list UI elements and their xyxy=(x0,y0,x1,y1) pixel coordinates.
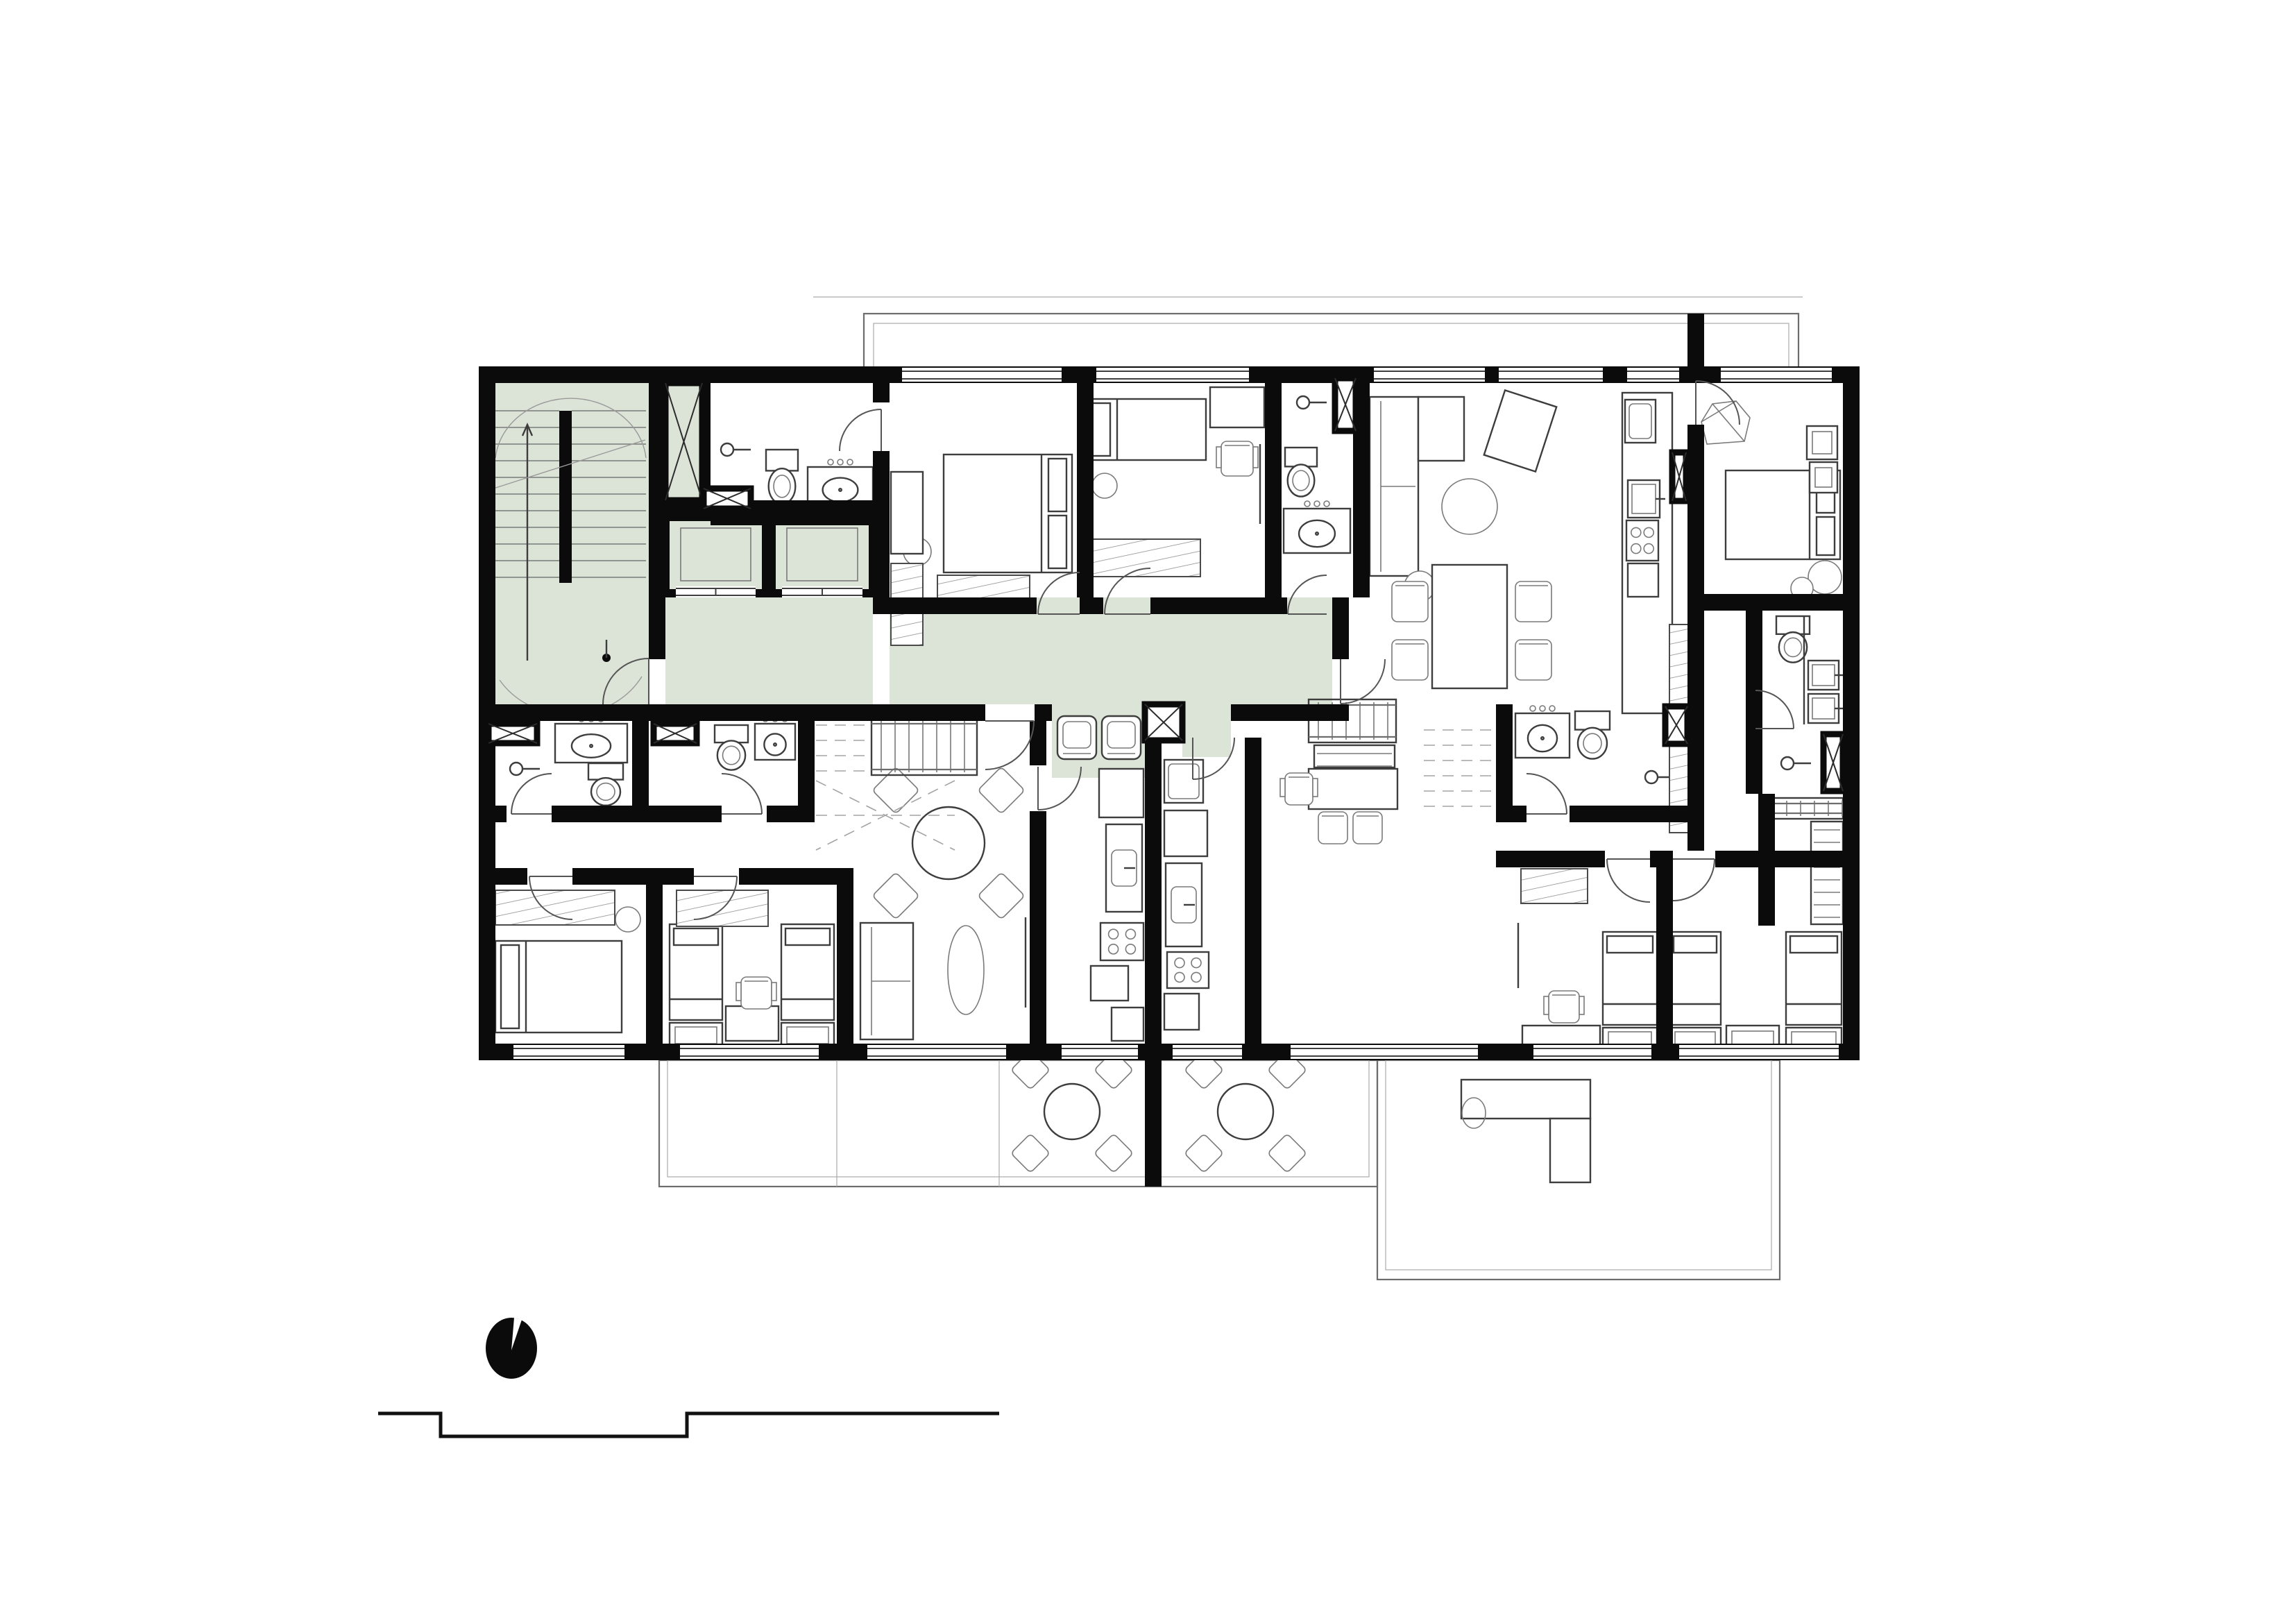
stove xyxy=(1100,923,1143,960)
pillow xyxy=(501,945,519,1028)
shower-head xyxy=(721,443,733,456)
cabinet xyxy=(1164,994,1199,1030)
wall xyxy=(1715,851,1843,867)
wall xyxy=(552,806,722,822)
wall xyxy=(646,885,663,1044)
wall xyxy=(1145,704,1162,1044)
desk xyxy=(1210,387,1264,427)
chair xyxy=(1392,581,1428,622)
closet-hatch xyxy=(1521,869,1588,903)
cabinet xyxy=(1164,810,1207,856)
toilet-tank xyxy=(766,450,798,470)
sink-basin xyxy=(823,478,858,502)
wall xyxy=(632,704,649,822)
shower-head xyxy=(510,763,522,775)
cabinet xyxy=(1099,769,1143,817)
stove xyxy=(1167,952,1209,988)
wall xyxy=(1245,738,1261,1044)
wall xyxy=(1758,794,1775,926)
chair xyxy=(1515,640,1551,680)
pillow xyxy=(1092,403,1110,456)
wall xyxy=(837,885,853,1044)
wall xyxy=(873,366,890,402)
cabinet xyxy=(1091,966,1128,1001)
wall xyxy=(1496,806,1527,822)
wall xyxy=(1843,366,1860,1060)
wall xyxy=(798,704,815,822)
pillow xyxy=(1790,936,1837,953)
toilet-tank xyxy=(1285,448,1317,466)
sink-basin xyxy=(572,734,611,758)
wall xyxy=(1570,806,1687,822)
north-arrow xyxy=(486,1318,537,1379)
wall xyxy=(1687,314,1704,366)
chair xyxy=(1392,640,1428,680)
desk xyxy=(726,1006,779,1041)
chair-arm xyxy=(736,983,741,1001)
chair xyxy=(1515,581,1551,622)
office-chair xyxy=(1221,441,1253,476)
stool xyxy=(615,907,640,932)
pillow xyxy=(1817,517,1835,555)
shower-head xyxy=(1645,771,1658,783)
wall xyxy=(1687,425,1704,851)
sink-basin xyxy=(1528,725,1557,751)
wall xyxy=(1030,721,1046,765)
wall xyxy=(739,868,853,885)
wall xyxy=(1650,851,1673,867)
sink-basin xyxy=(1299,520,1335,547)
pillow xyxy=(674,928,718,945)
office-chair xyxy=(1285,773,1313,805)
cabinet xyxy=(1112,1008,1143,1041)
wall xyxy=(1077,366,1094,597)
toilet-bowl xyxy=(1288,464,1315,496)
sink-basin xyxy=(764,733,785,755)
wall xyxy=(1265,366,1282,597)
toilet-bowl xyxy=(1779,632,1807,663)
desk xyxy=(1309,769,1397,809)
stove xyxy=(1626,520,1658,561)
round-table xyxy=(912,807,985,879)
cabinet xyxy=(1418,397,1464,461)
cabinet xyxy=(1550,1119,1590,1182)
wall xyxy=(1746,611,1762,729)
toilet-bowl xyxy=(717,740,745,770)
office-chair xyxy=(1549,991,1579,1023)
stair-divider xyxy=(559,411,572,583)
cabinet xyxy=(1461,1080,1590,1119)
toilet-bowl xyxy=(769,468,796,504)
wall xyxy=(479,806,507,822)
nightstand xyxy=(1810,462,1837,493)
wall xyxy=(1030,811,1046,1044)
dining-table xyxy=(1432,565,1507,688)
round-table xyxy=(1044,1084,1100,1139)
pillow xyxy=(1674,936,1717,953)
wall xyxy=(572,868,694,885)
wall xyxy=(1704,594,1843,611)
wall xyxy=(1150,597,1287,614)
wall xyxy=(1231,704,1349,721)
pillow xyxy=(785,928,830,945)
toilet-bowl xyxy=(591,778,620,806)
chair xyxy=(1318,812,1347,844)
chair-arm xyxy=(772,983,776,1001)
cabinet xyxy=(1628,563,1658,597)
wall xyxy=(1496,704,1513,822)
shower-head xyxy=(1781,757,1794,770)
chair-arm xyxy=(1253,447,1258,468)
wall xyxy=(1080,597,1103,614)
chair-arm xyxy=(1280,779,1285,797)
shower-head xyxy=(1297,396,1309,409)
pillow xyxy=(1048,516,1066,568)
wall xyxy=(1746,729,1762,794)
pillow xyxy=(1048,459,1066,511)
wall xyxy=(649,704,985,721)
wall xyxy=(767,806,815,822)
pillow xyxy=(1607,936,1653,953)
wall xyxy=(1035,704,1052,721)
terrace-divider-wall xyxy=(1145,1060,1162,1187)
green-zone xyxy=(1182,704,1231,757)
green-zone xyxy=(665,593,873,704)
stool xyxy=(1092,473,1117,498)
toilet-bowl xyxy=(1578,728,1607,759)
chair-arm xyxy=(1216,447,1221,468)
wall xyxy=(1496,851,1605,867)
floor-plan-drawing xyxy=(0,0,2296,1623)
chair xyxy=(1353,812,1382,844)
fridge xyxy=(1164,760,1203,803)
wall xyxy=(1332,597,1349,659)
closet-hatch xyxy=(1084,539,1200,577)
closet-hatch xyxy=(495,890,615,925)
sink-square xyxy=(1628,480,1660,518)
office-chair xyxy=(741,977,772,1009)
chair-arm xyxy=(1544,996,1549,1014)
wall xyxy=(1687,366,1704,378)
wall xyxy=(479,868,527,885)
chair-arm xyxy=(1579,996,1584,1014)
chair-arm xyxy=(1313,779,1318,797)
floor-plan-page xyxy=(0,0,2296,1623)
round-table xyxy=(1218,1084,1273,1139)
cabinet xyxy=(891,472,923,554)
wall xyxy=(890,597,1037,614)
wall xyxy=(1656,867,1673,1044)
